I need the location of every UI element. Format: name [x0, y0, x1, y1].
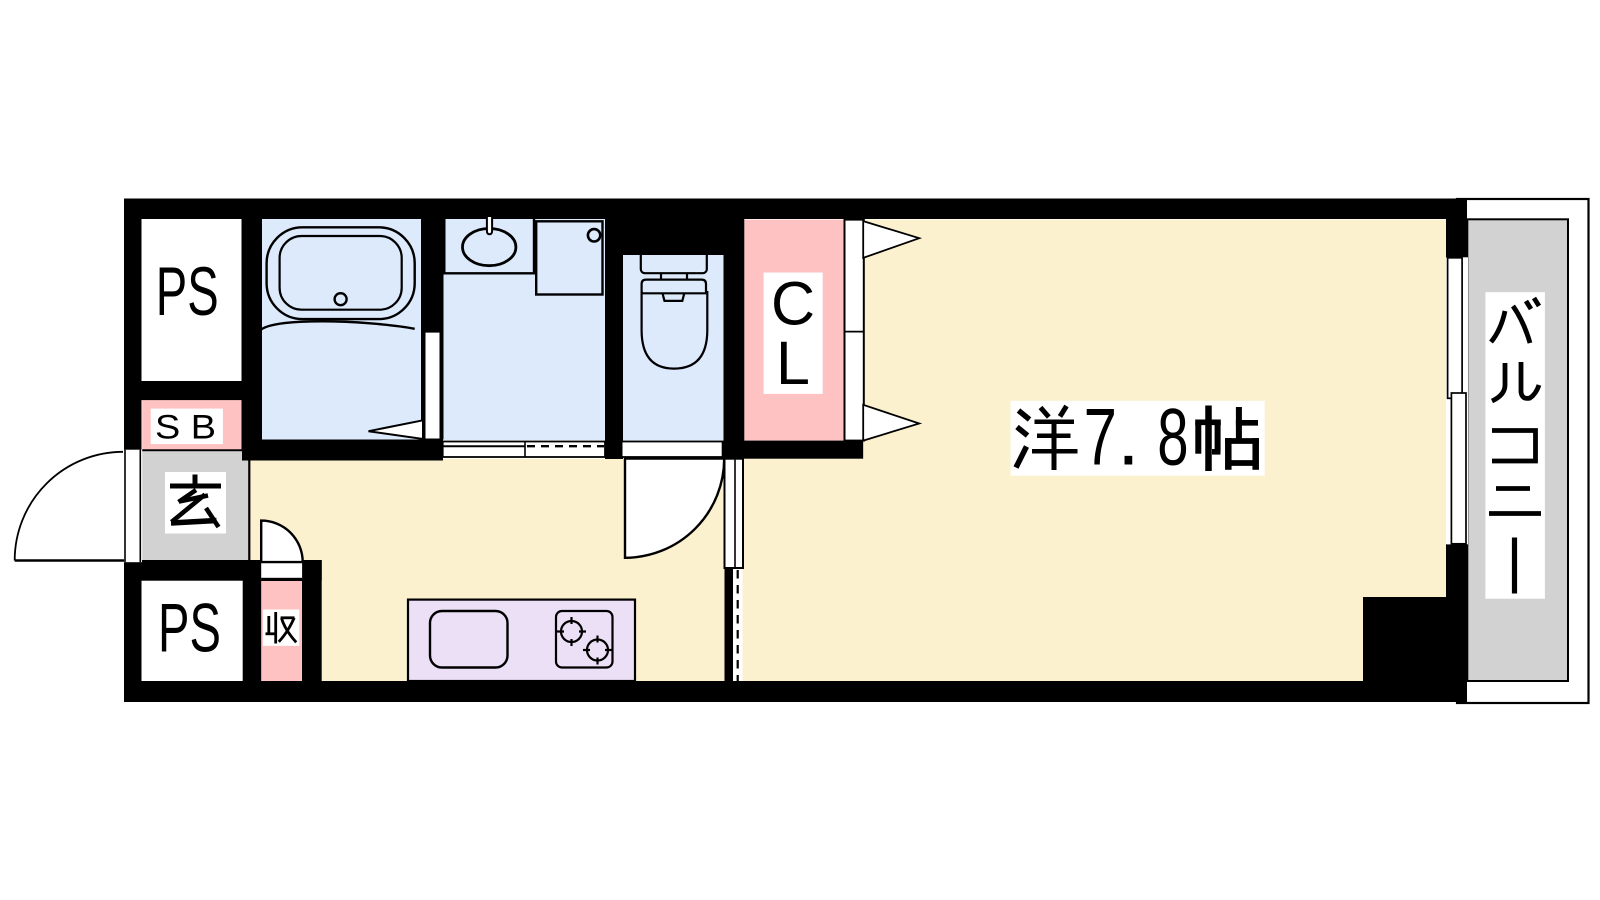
svg-text:7: 7 — [1084, 392, 1117, 482]
svg-text:L: L — [776, 329, 810, 397]
svg-text:PS: PS — [158, 590, 221, 667]
svg-text:S B: S B — [155, 409, 216, 447]
svg-text:.: . — [1117, 392, 1140, 482]
svg-text:PS: PS — [156, 253, 219, 330]
svg-text:8: 8 — [1157, 392, 1188, 482]
svg-text:C: C — [771, 270, 815, 338]
